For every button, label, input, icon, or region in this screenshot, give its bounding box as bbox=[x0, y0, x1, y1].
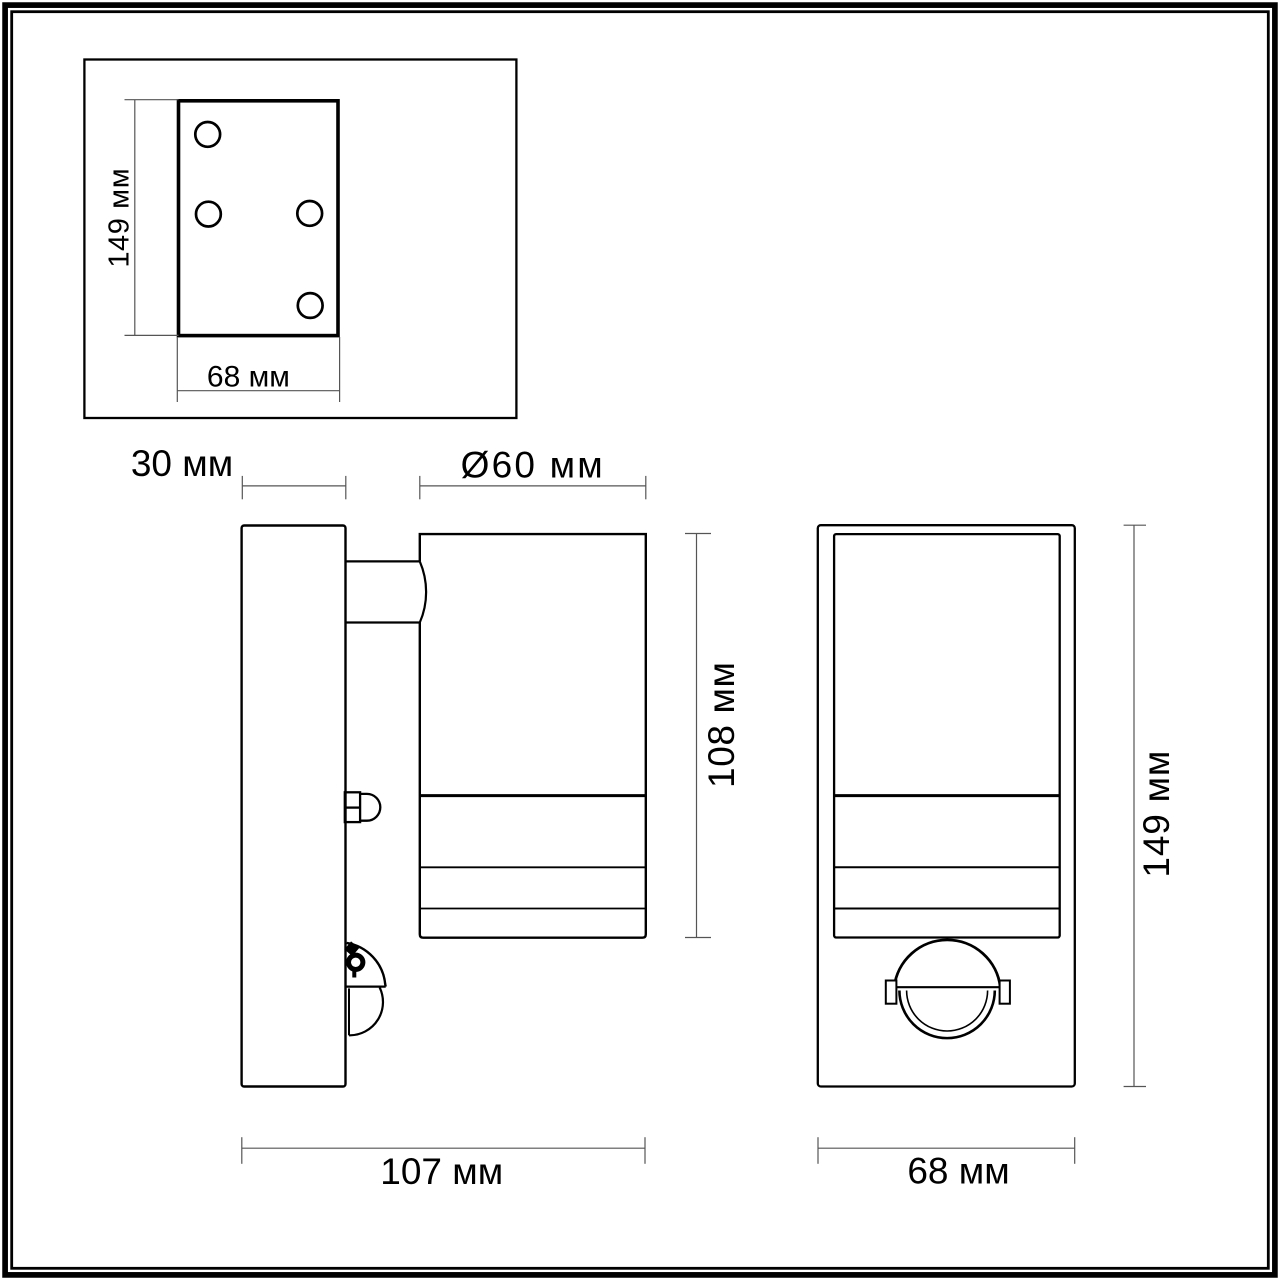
svg-text:68 мм: 68 мм bbox=[907, 1150, 1009, 1191]
svg-text:107 мм: 107 мм bbox=[380, 1151, 503, 1192]
svg-text:30 мм: 30 мм bbox=[131, 443, 233, 484]
svg-text:68 мм: 68 мм bbox=[207, 361, 290, 394]
svg-text:149 мм: 149 мм bbox=[1136, 750, 1177, 878]
svg-text:149 мм: 149 мм bbox=[104, 168, 136, 268]
svg-text:Ø60 мм: Ø60 мм bbox=[461, 445, 605, 486]
svg-text:108 мм: 108 мм bbox=[701, 661, 742, 788]
